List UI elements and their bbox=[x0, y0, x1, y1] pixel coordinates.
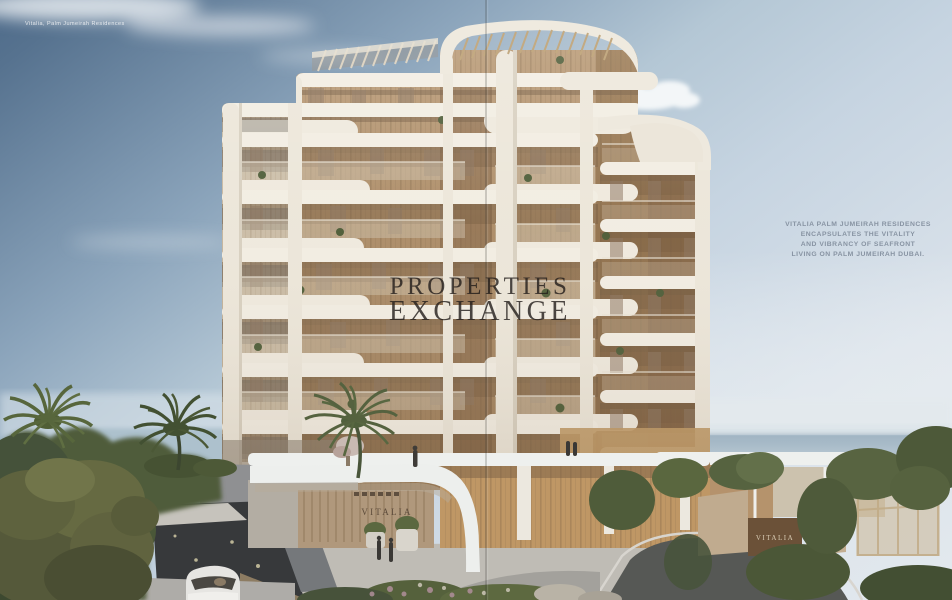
svg-text:VITALIA: VITALIA bbox=[756, 534, 794, 542]
svg-text:VITALIA: VITALIA bbox=[361, 507, 412, 517]
